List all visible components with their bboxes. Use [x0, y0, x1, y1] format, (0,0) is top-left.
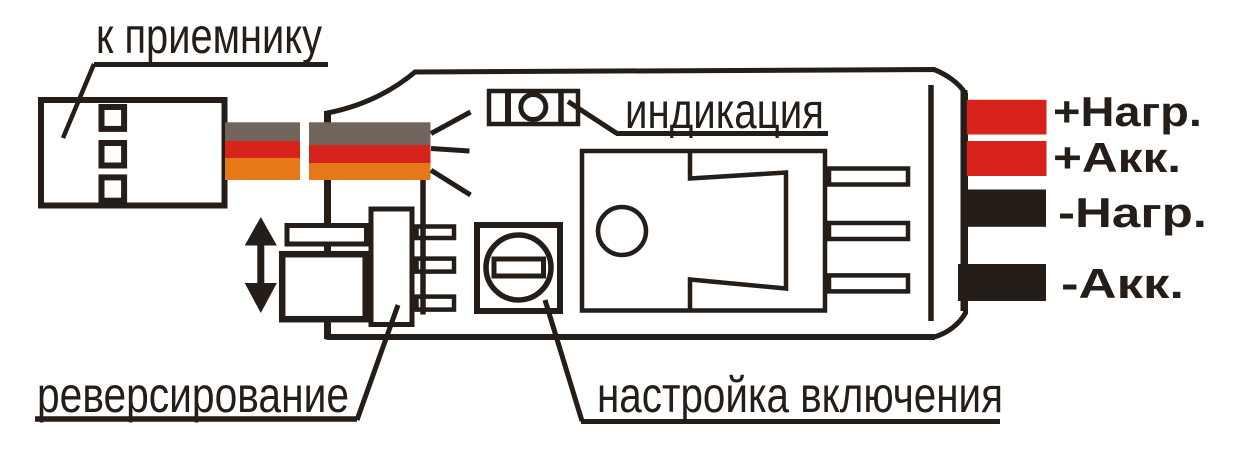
svg-text:настройка включения: настройка включения	[597, 367, 1003, 423]
svg-text:индикация: индикация	[625, 83, 824, 139]
svg-text:-Нагр.: -Нагр.	[1058, 189, 1207, 236]
svg-text:к приемнику: к приемнику	[96, 8, 322, 64]
svg-text:+Нагр.: +Нагр.	[1053, 88, 1202, 135]
svg-text:+Акк.: +Акк.	[1053, 134, 1181, 181]
svg-text:реверсирование: реверсирование	[37, 367, 349, 423]
svg-text:-Акк.: -Акк.	[1061, 260, 1184, 307]
